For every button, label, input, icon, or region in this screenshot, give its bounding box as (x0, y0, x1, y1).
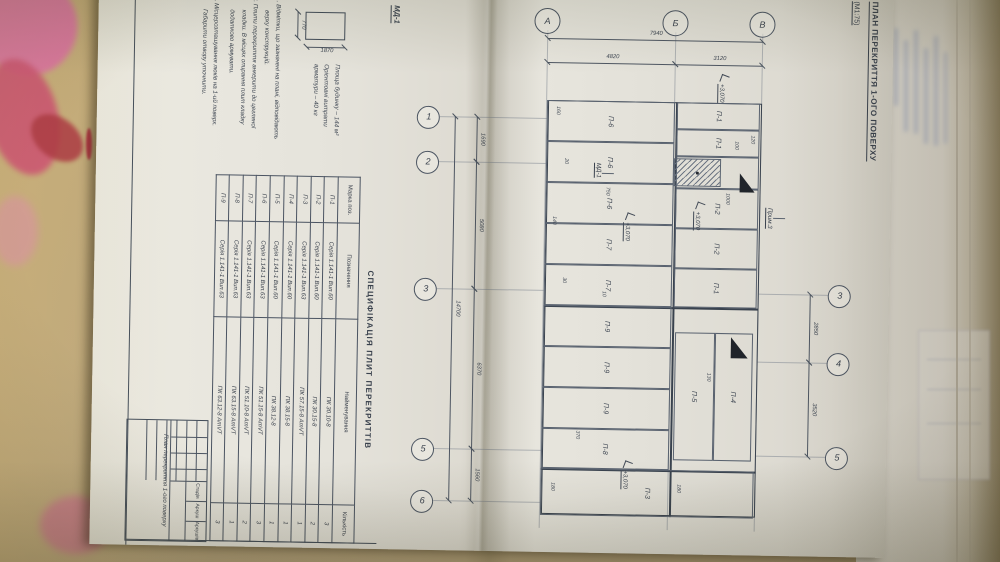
axis-bubble-4: 4 (827, 352, 850, 375)
plate-П-8: П-8 (541, 428, 670, 470)
spec-table-cell: П-1 (324, 177, 338, 223)
axis-line-5 (756, 456, 826, 458)
md1-width-dim-line (297, 12, 298, 38)
bleed-through-figure (918, 330, 990, 480)
axis-bubble-label: А (544, 16, 550, 26)
spec-table-cell: 2 (237, 503, 251, 541)
plate-П-1: П-1 (677, 102, 760, 130)
small-dim-180: 180 (549, 482, 555, 491)
bleed-through-text (934, 36, 938, 146)
axis-bubble-label: 5 (420, 444, 425, 454)
stamp-grid-line (170, 480, 206, 481)
md1-detail-label: МД-1 (390, 5, 401, 24)
material-note-line: Орієнтовні витрати (319, 64, 331, 135)
spec-table-cell: Серія 1.141-1 Вип.63 (295, 222, 310, 318)
stamp-cell-label: Стадія (194, 481, 200, 501)
md1-width-dim: 770 (300, 3, 307, 47)
spec-table-title: СПЕЦИФІКАЦІЯ ПЛИТ ПЕРЕКРИТТІВ (361, 177, 376, 543)
spec-table-cell: П-9 (215, 175, 229, 221)
axis-line-4 (758, 362, 828, 364)
pink-marker-stain (0, 196, 38, 266)
dim-label: 2850 (812, 307, 819, 351)
small-dim-180: 180 (675, 484, 681, 493)
dim-line (548, 62, 676, 65)
plate-П-1: П-1 (674, 268, 758, 308)
spec-table-cell: П-8 (229, 175, 243, 221)
axis-bubble-1: 1 (417, 105, 440, 128)
plate-П-6: П-6 (546, 100, 675, 143)
spec-table-cell: П-5 (269, 176, 283, 222)
bleed-through-text (914, 30, 918, 134)
small-dim-160: 160 (555, 106, 561, 115)
spec-table-cell: Серія 1.141-1 Вип.60 (281, 222, 296, 318)
page-edge (969, 0, 971, 562)
spec-table-cell: 1 (264, 504, 278, 542)
small-dim-370: 370 (574, 430, 580, 439)
spec-table-cell: П-6 (256, 175, 270, 221)
plate-П-5: П-5 (673, 332, 715, 461)
stamp-grid-line (186, 421, 188, 481)
axis-bubble-label: Б (672, 18, 678, 28)
spec-table-cell: 3 (250, 503, 264, 541)
spec-table-cell: Серія 1.141-1 Вип.63 (254, 221, 269, 317)
black-triangle-mark (740, 173, 755, 192)
drawing-title: ПЛАН ПЕРЕКРИТТЯ 1-ОГО ПОВЕРХУ (М1:75) (847, 1, 886, 161)
axis-bubble-label: 5 (834, 453, 839, 463)
dim-label: 3520 (810, 388, 817, 432)
spec-table-cell: 1 (223, 503, 237, 541)
axis-bubble-label: 3 (423, 284, 428, 294)
axis-bubble-2: 2 (416, 150, 439, 173)
bleed-through-text (904, 40, 908, 132)
dim-line (548, 38, 763, 43)
axis-bubble-label: 4 (836, 359, 841, 369)
md1-detail-rectangle (305, 12, 345, 41)
dim-label: 4820 (591, 54, 635, 61)
bleed-through-text (944, 52, 947, 144)
callout-Прим.3: Прим.3 (765, 208, 773, 229)
axis-bubble-label: 6 (420, 496, 425, 506)
elevation-mark: +3,070 (624, 213, 634, 241)
axis-bubble-А: А (534, 8, 560, 34)
stamp-cell-label: Аркушів (193, 521, 199, 541)
elevation-value: +3,070 (717, 84, 724, 103)
spec-table-cell: 1 (291, 504, 305, 542)
small-dim-120: 120 (749, 136, 755, 145)
plate-П-2: П-2 (675, 188, 759, 229)
dim-label: 7940 (635, 30, 679, 37)
title-block-stamp: План перекриття 1-ого поверху СтадіяАрку… (124, 419, 208, 542)
elevation-arrow-icon (695, 201, 705, 211)
small-dim-20: 20 (563, 158, 569, 164)
small-dim-1000: 1000 (724, 193, 730, 205)
spec-table-cell: Серія 1.141-1 Вип.60 (322, 223, 337, 319)
spec-table-cell: 2 (305, 504, 319, 542)
plate-П-3: П-3 (540, 468, 754, 519)
spec-table-cell: П-7 (242, 175, 256, 221)
dim-line (470, 449, 472, 501)
plate-П-9: П-9 (543, 305, 672, 348)
spec-column-header: Марка поз. (337, 177, 360, 223)
spec-table-cell: Серія 1.141-1 Вип.63 (213, 221, 228, 317)
dim-label: 14700 (454, 286, 461, 330)
dim-label: 5080 (478, 203, 485, 247)
photo-of-drawing: ПЛАН ПЕРЕКРИТТЯ 1-ОГО ПОВЕРХУ (М1:75) ВБ… (0, 0, 1000, 562)
drawing-scale: (М1:75) (851, 1, 859, 25)
spec-table-cell: П-4 (283, 176, 297, 222)
elevation-value: +3,070 (693, 212, 700, 231)
spec-table-grid: Марка поз.ПозначенняНайменуванняКількіст… (209, 174, 361, 543)
small-dim-30: 30 (561, 277, 567, 283)
spec-table-cell: Серія 1.141-1 Вип.60 (268, 222, 283, 318)
small-dim-130: 130 (705, 373, 711, 382)
stamp-grid-line (146, 420, 148, 480)
black-triangle-mark (731, 337, 748, 358)
md1-height-dim: 1870 (305, 48, 349, 55)
stamp-grid-line (196, 421, 198, 481)
small-dim-750: 750 (604, 187, 610, 196)
bleed-through-text (894, 28, 898, 106)
spec-table-cell: Серія 1.141-1 Вип.63 (241, 221, 256, 317)
specification-table: Марка поз.ПозначенняНайменуванняКількіст… (209, 174, 361, 543)
dim-line (676, 64, 763, 67)
axis-bubble-В: В (749, 11, 775, 37)
stamp-cell-label: Аркуш (194, 501, 200, 521)
material-note-line: Площа будинку – 144 м² (330, 64, 342, 135)
material-note: Площа будинку – 144 м²Орієнтовні витрати… (309, 64, 342, 136)
spec-table-cell: Серія 1.141-1 Вип.60 (309, 222, 324, 318)
notes-block: 1. Відмітки, що зазначені на плані, відп… (196, 0, 284, 177)
axis-bubble-label: В (759, 20, 765, 30)
spec-table-cell: 1 (278, 504, 292, 542)
plate-П-7: П-7 (544, 264, 673, 307)
plate-П-7: П-7 (544, 223, 673, 266)
spec-table-cell: 3 (210, 503, 224, 541)
spec-table-cell: 3 (318, 505, 332, 543)
axis-bubble-5: 5 (411, 437, 434, 460)
plate-П-9: П-9 (542, 346, 671, 389)
callout-МД-1: МД-1 (594, 163, 602, 178)
drawing-sheet: ПЛАН ПЕРЕКРИТТЯ 1-ОГО ПОВЕРХУ (М1:75) ВБ… (89, 0, 894, 558)
dim-label: 6370 (475, 347, 482, 391)
small-dim-10: 10 (601, 291, 607, 297)
dim-line (474, 162, 477, 289)
page-edge (956, 0, 958, 562)
dim-label: 3120 (698, 56, 742, 63)
elevation-mark: +3,070 (621, 461, 631, 489)
spec-table-cell: П-3 (297, 176, 311, 222)
stamp-grid-line (185, 481, 187, 541)
callout-leader (602, 173, 614, 174)
axis-bubble-label: 3 (837, 291, 842, 301)
drawing-title-text: ПЛАН ПЕРЕКРИТТЯ 1-ОГО ПОВЕРХУ (866, 2, 880, 162)
spec-column-header: Позначення (336, 223, 360, 319)
spec-column-header: Кількість (332, 505, 355, 543)
elevation-value: +3,070 (620, 470, 627, 489)
axis-bubble-label: 2 (425, 157, 430, 167)
axis-bubble-3: 3 (828, 284, 851, 307)
callout-leader (773, 218, 785, 219)
dim-line (807, 363, 810, 457)
plate-П-9: П-9 (541, 387, 670, 430)
axis-bubble-label: 1 (426, 112, 431, 122)
small-dim-140: 140 (551, 216, 557, 225)
elevation-arrow-icon (719, 74, 729, 84)
dim-label: 1690 (479, 117, 486, 161)
dim-line (809, 295, 811, 363)
spec-column-header: Найменування (333, 319, 358, 505)
small-dim-100: 100 (733, 141, 739, 150)
axis-bubble-3: 3 (414, 277, 437, 300)
dim-label: 1560 (473, 453, 480, 497)
elevation-arrow-icon (625, 212, 635, 222)
red-marker-stain (86, 128, 92, 160)
axis-bubble-5: 5 (825, 446, 848, 469)
axis-line-3 (759, 294, 829, 296)
dim-line (476, 117, 478, 162)
stamp-grid-line (156, 420, 158, 480)
plate-П-1: П-1 (676, 129, 759, 157)
elevation-value: +3,070 (623, 222, 630, 241)
elevation-mark: +3,070 (694, 203, 704, 231)
stamp-grid-line (176, 421, 178, 481)
bleed-through-text (924, 48, 928, 144)
spec-table-cell: Серія 1.141-1 Вип.63 (227, 221, 242, 317)
axis-bubble-6: 6 (410, 489, 433, 512)
elevation-mark: +3,070 (718, 75, 728, 103)
elevation-arrow-icon (623, 460, 633, 470)
spec-table-cell: П-2 (310, 176, 324, 222)
plate-П-2: П-2 (674, 228, 758, 269)
dim-line (471, 289, 475, 449)
